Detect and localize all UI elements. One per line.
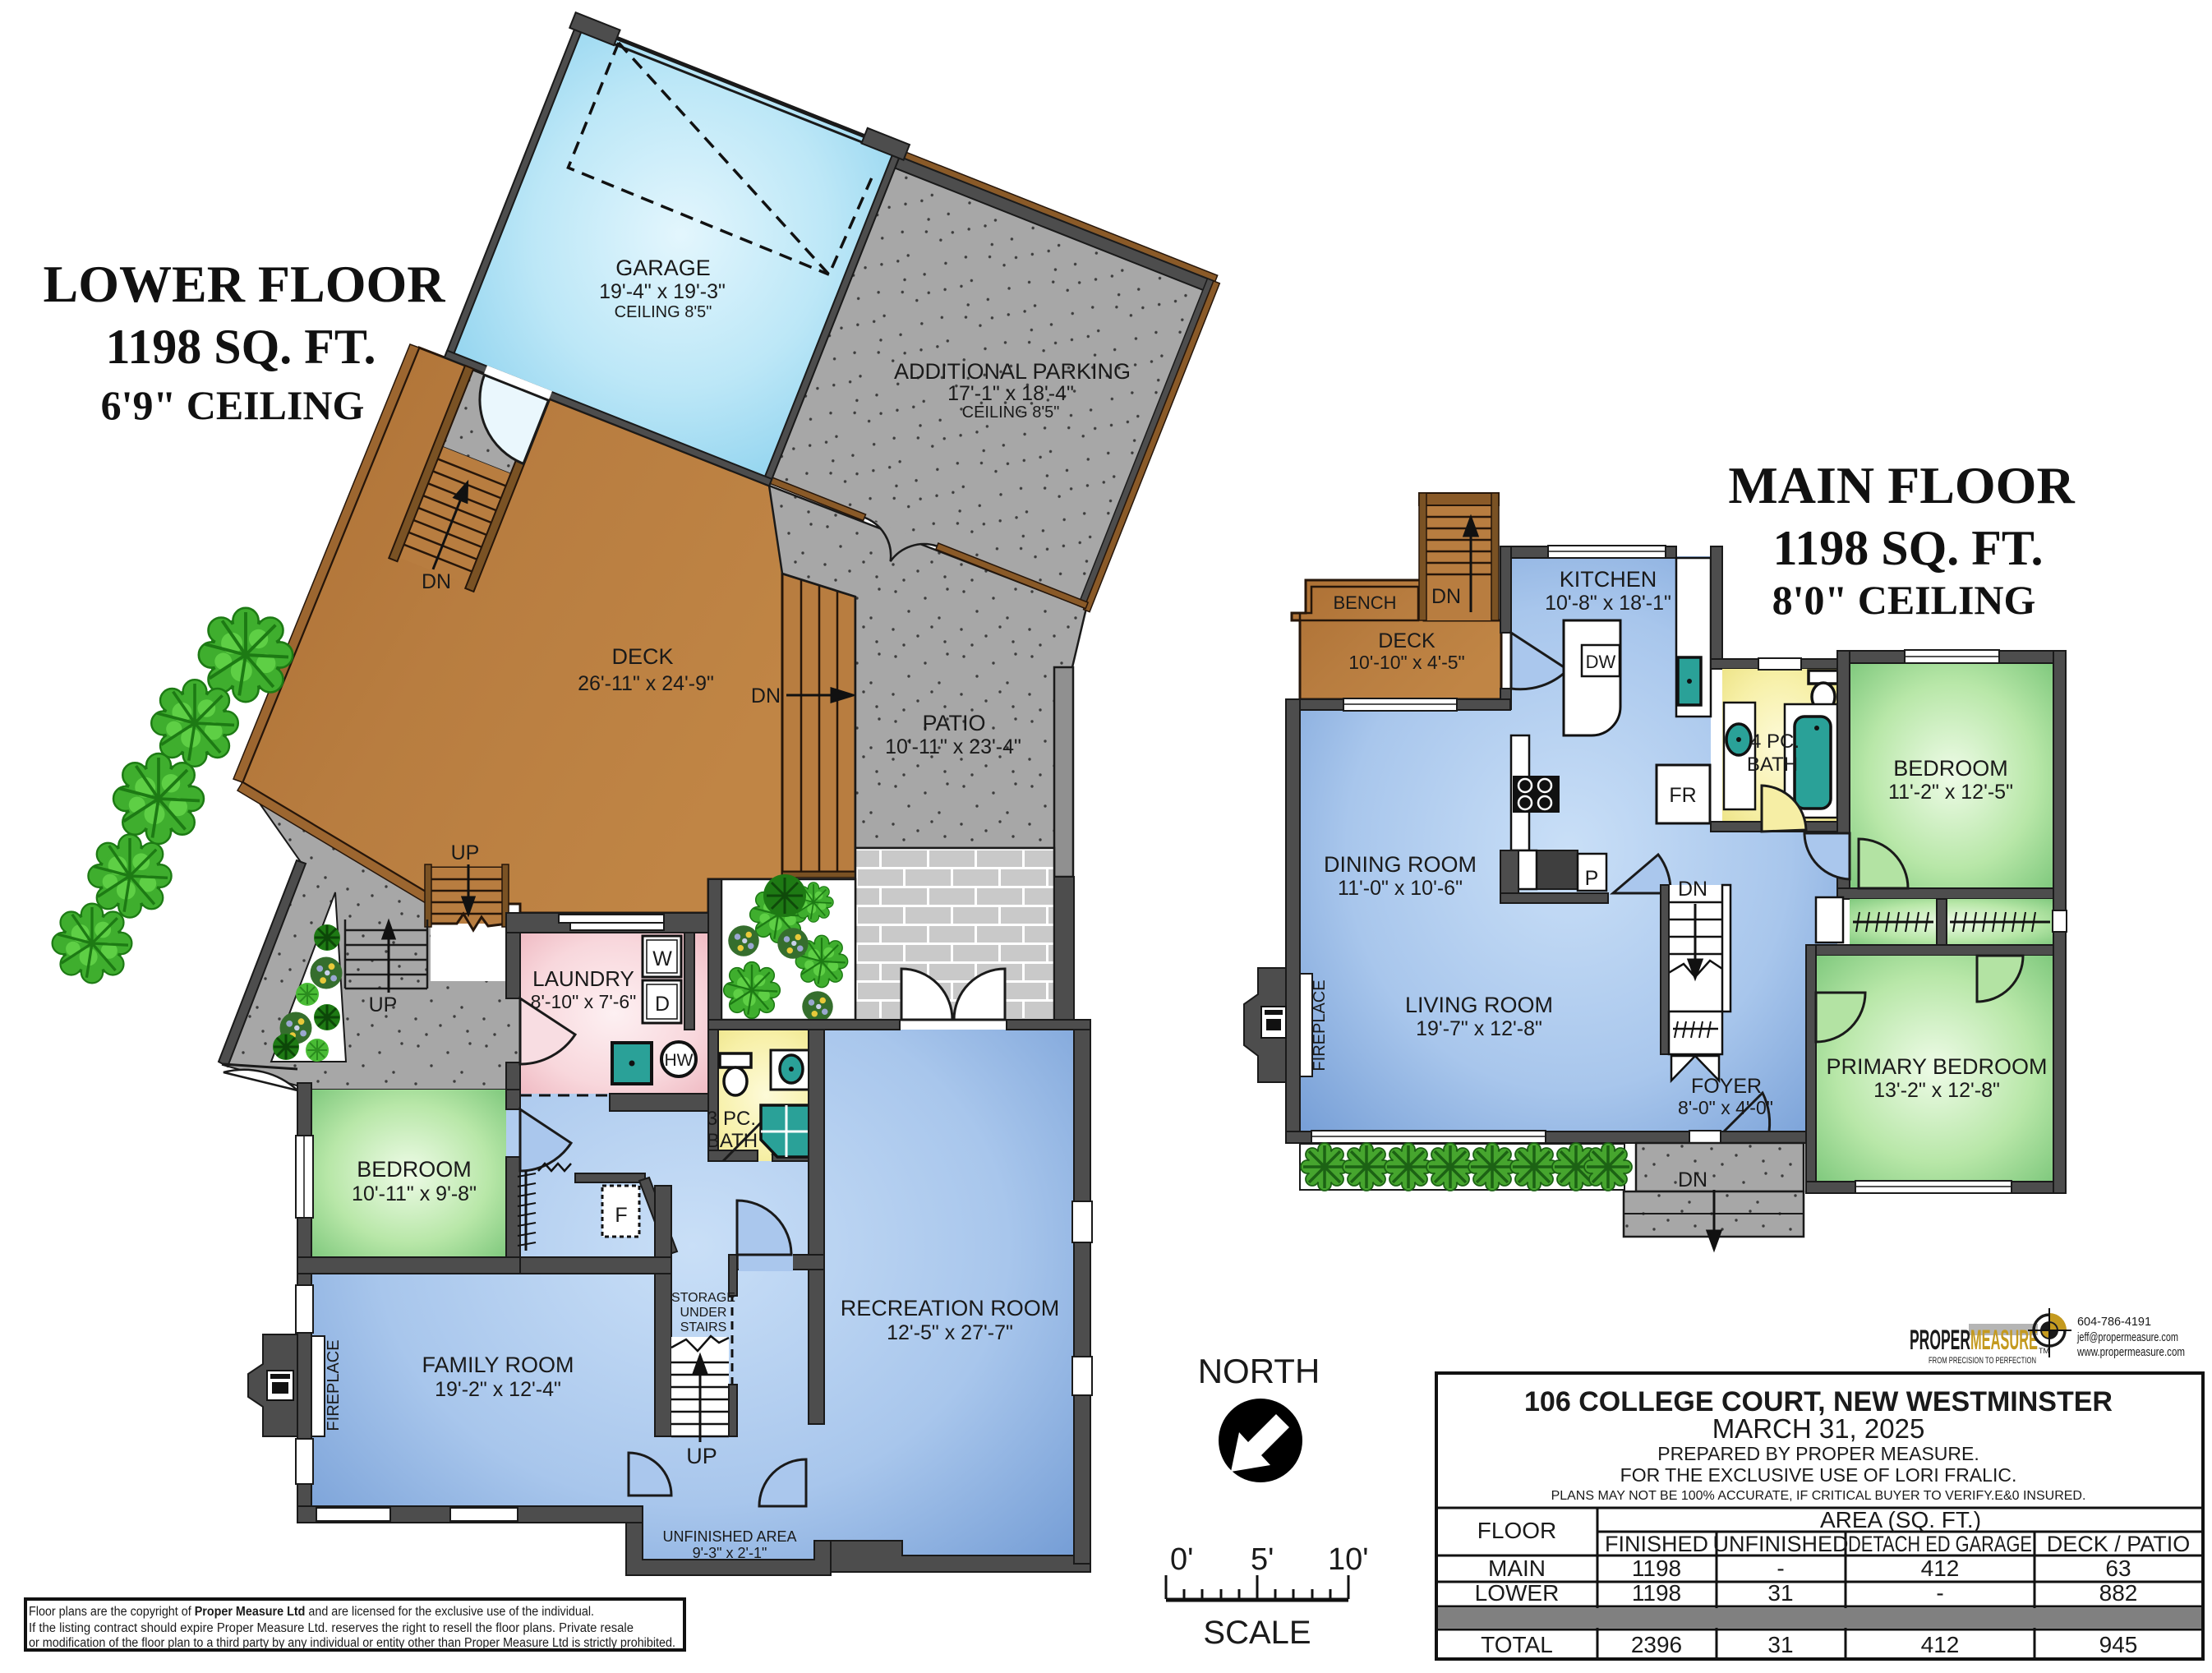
svg-text:8'0" CEILING: 8'0" CEILING — [1772, 577, 2036, 623]
svg-text:FROM PRECISION TO PERFECTION: FROM PRECISION TO PERFECTION — [1929, 1356, 2036, 1366]
svg-text:or modification of the floor p: or modification of the floor plan to a t… — [29, 1636, 675, 1650]
svg-text:19'-7" x 12'-8": 19'-7" x 12'-8" — [1416, 1017, 1542, 1040]
svg-text:945: 945 — [2099, 1632, 2138, 1657]
svg-text:8'-0" x 4'-0": 8'-0" x 4'-0" — [1678, 1097, 1773, 1118]
svg-text:PRIMARY BEDROOM: PRIMARY BEDROOM — [1826, 1054, 2047, 1079]
svg-text:UNFINISHED: UNFINISHED — [1712, 1532, 1848, 1556]
svg-text:STAIRS: STAIRS — [680, 1320, 727, 1334]
svg-text:1198 SQ. FT.: 1198 SQ. FT. — [106, 320, 376, 374]
svg-text:3 PC.: 3 PC. — [707, 1108, 756, 1130]
svg-text:17'-1" x 18'-4": 17'-1" x 18'-4" — [947, 382, 1074, 405]
svg-text:FOYER: FOYER — [1691, 1075, 1762, 1098]
svg-text:NORTH: NORTH — [1198, 1352, 1320, 1390]
svg-text:BATH: BATH — [1747, 754, 1798, 776]
svg-text:10'-11" x 9'-8": 10'-11" x 9'-8" — [352, 1182, 477, 1205]
svg-text:W: W — [652, 947, 672, 970]
svg-text:STORAGE: STORAGE — [671, 1291, 735, 1305]
svg-text:DECK / PATIO: DECK / PATIO — [2047, 1532, 2191, 1556]
svg-text:MARCH 31, 2025: MARCH 31, 2025 — [1712, 1413, 1925, 1444]
svg-text:HW: HW — [665, 1051, 694, 1070]
svg-text:1198: 1198 — [1632, 1555, 1681, 1581]
svg-text:BENCH: BENCH — [1333, 592, 1396, 613]
svg-text:11'-0" x 10'-6": 11'-0" x 10'-6" — [1338, 877, 1463, 900]
svg-text:TOTAL: TOTAL — [1481, 1632, 1553, 1657]
svg-text:D: D — [655, 993, 670, 1016]
svg-text:FOR THE EXCLUSIVE USE OF LORI: FOR THE EXCLUSIVE USE OF LORI FRALIC. — [1620, 1464, 2017, 1486]
svg-text:1198 SQ. FT.: 1198 SQ. FT. — [1773, 521, 2044, 575]
svg-text:-: - — [1777, 1555, 1784, 1581]
svg-text:If the listing contract should: If the listing contract should expire Pr… — [29, 1621, 634, 1635]
svg-text:FAMILY ROOM: FAMILY ROOM — [422, 1353, 574, 1377]
svg-text:DN: DN — [1678, 1168, 1707, 1191]
svg-text:UP: UP — [686, 1444, 717, 1468]
svg-text:MAIN: MAIN — [1488, 1555, 1546, 1581]
svg-text:PROPER: PROPER — [1910, 1325, 1970, 1356]
svg-text:1198: 1198 — [1632, 1580, 1681, 1606]
svg-text:6'9" CEILING: 6'9" CEILING — [101, 382, 365, 428]
svg-text:DECK: DECK — [1378, 629, 1435, 652]
svg-text:CEILING 8'5": CEILING 8'5" — [962, 403, 1060, 422]
svg-text:DINING ROOM: DINING ROOM — [1324, 852, 1477, 877]
svg-text:31: 31 — [1767, 1632, 1793, 1657]
svg-text:10'-10" x 4'-5": 10'-10" x 4'-5" — [1348, 652, 1464, 673]
svg-text:882: 882 — [2099, 1580, 2138, 1606]
svg-text:412: 412 — [1921, 1632, 1960, 1657]
svg-text:DETACH ED GARAGE: DETACH ED GARAGE — [1848, 1532, 2032, 1556]
svg-text:9'-3" x 2'-1": 9'-3" x 2'-1" — [693, 1545, 767, 1561]
svg-text:4 PC.: 4 PC. — [1750, 730, 1800, 753]
svg-text:Floor plans are the copyright: Floor plans are the copyright of Proper … — [29, 1605, 594, 1619]
svg-text:MAIN FLOOR: MAIN FLOOR — [1728, 456, 2075, 514]
svg-text:5': 5' — [1251, 1542, 1274, 1577]
svg-text:13'-2" x 12'-8": 13'-2" x 12'-8" — [1873, 1079, 2000, 1102]
svg-text:TM: TM — [2039, 1347, 2049, 1355]
svg-text:12'-5" x 27'-7": 12'-5" x 27'-7" — [887, 1321, 1013, 1344]
svg-text:11'-2" x 12'-5": 11'-2" x 12'-5" — [1888, 781, 2013, 804]
svg-text:FINISHED: FINISHED — [1605, 1532, 1708, 1556]
svg-text:MEASURE: MEASURE — [1970, 1325, 2038, 1356]
svg-text:10'-11" x 23'-4": 10'-11" x 23'-4" — [885, 735, 1021, 758]
svg-text:www.propermeasure.com: www.propermeasure.com — [2076, 1345, 2185, 1359]
svg-text:FLOOR: FLOOR — [1477, 1518, 1556, 1543]
svg-text:P: P — [1585, 867, 1599, 890]
svg-text:2396: 2396 — [1631, 1632, 1682, 1657]
svg-text:UP: UP — [451, 841, 480, 864]
svg-text:KITCHEN: KITCHEN — [1560, 567, 1657, 592]
svg-text:19'-4" x 19'-3": 19'-4" x 19'-3" — [599, 280, 726, 303]
svg-text:BEDROOM: BEDROOM — [1893, 756, 2008, 781]
svg-text:CEILING 8'5": CEILING 8'5" — [615, 303, 712, 321]
svg-text:UNDER: UNDER — [680, 1306, 727, 1320]
svg-text:DN: DN — [1431, 585, 1461, 608]
svg-text:F: F — [615, 1204, 627, 1227]
svg-text:-: - — [1936, 1580, 1943, 1606]
svg-text:63: 63 — [2105, 1555, 2131, 1581]
svg-text:BEDROOM: BEDROOM — [357, 1157, 472, 1182]
svg-text:19'-2" x 12'-4": 19'-2" x 12'-4" — [435, 1378, 561, 1401]
svg-text:10'-8" x 18'-1": 10'-8" x 18'-1" — [1545, 592, 1671, 615]
svg-text:FR: FR — [1669, 784, 1696, 807]
svg-text:ADDITIONAL PARKING: ADDITIONAL PARKING — [894, 359, 1131, 384]
svg-text:604-786-4191: 604-786-4191 — [2077, 1315, 2151, 1329]
svg-text:PREPARED BY PROPER MEASURE.: PREPARED BY PROPER MEASURE. — [1657, 1443, 1979, 1464]
svg-text:UNFINISHED AREA: UNFINISHED AREA — [662, 1528, 796, 1545]
svg-text:BATH: BATH — [707, 1130, 758, 1152]
svg-text:jeff@propermeasure.com: jeff@propermeasure.com — [2076, 1330, 2178, 1344]
svg-text:LAUNDRY: LAUNDRY — [532, 966, 634, 991]
svg-text:31: 31 — [1767, 1580, 1793, 1606]
svg-text:FIREPLACE: FIREPLACE — [325, 1339, 343, 1431]
svg-text:FIREPLACE: FIREPLACE — [1311, 979, 1329, 1071]
svg-text:DW: DW — [1586, 652, 1616, 672]
svg-text:SCALE: SCALE — [1203, 1615, 1311, 1651]
svg-text:AREA (SQ. FT.): AREA (SQ. FT.) — [1820, 1507, 1981, 1532]
svg-text:RECREATION ROOM: RECREATION ROOM — [841, 1296, 1060, 1320]
svg-text:LOWER: LOWER — [1475, 1580, 1560, 1606]
svg-text:PLANS MAY NOT BE 100% ACCURATE: PLANS MAY NOT BE 100% ACCURATE, IF CRITI… — [1551, 1489, 2086, 1503]
svg-text:LOWER FLOOR: LOWER FLOOR — [44, 255, 446, 313]
svg-text:8'-10" x 7'-6": 8'-10" x 7'-6" — [531, 991, 637, 1012]
svg-text:UP: UP — [369, 993, 398, 1016]
svg-text:DN: DN — [1678, 878, 1707, 901]
svg-text:GARAGE: GARAGE — [615, 256, 711, 280]
svg-text:26'-11" x 24'-9": 26'-11" x 24'-9" — [578, 672, 714, 695]
svg-text:DN: DN — [422, 570, 451, 593]
svg-text:DN: DN — [751, 684, 781, 707]
svg-text:0': 0' — [1170, 1542, 1193, 1577]
svg-text:PATIO: PATIO — [922, 711, 985, 735]
svg-text:412: 412 — [1921, 1555, 1960, 1581]
svg-text:DECK: DECK — [611, 644, 673, 669]
svg-text:LIVING ROOM: LIVING ROOM — [1405, 993, 1553, 1017]
svg-text:10': 10' — [1328, 1542, 1369, 1577]
